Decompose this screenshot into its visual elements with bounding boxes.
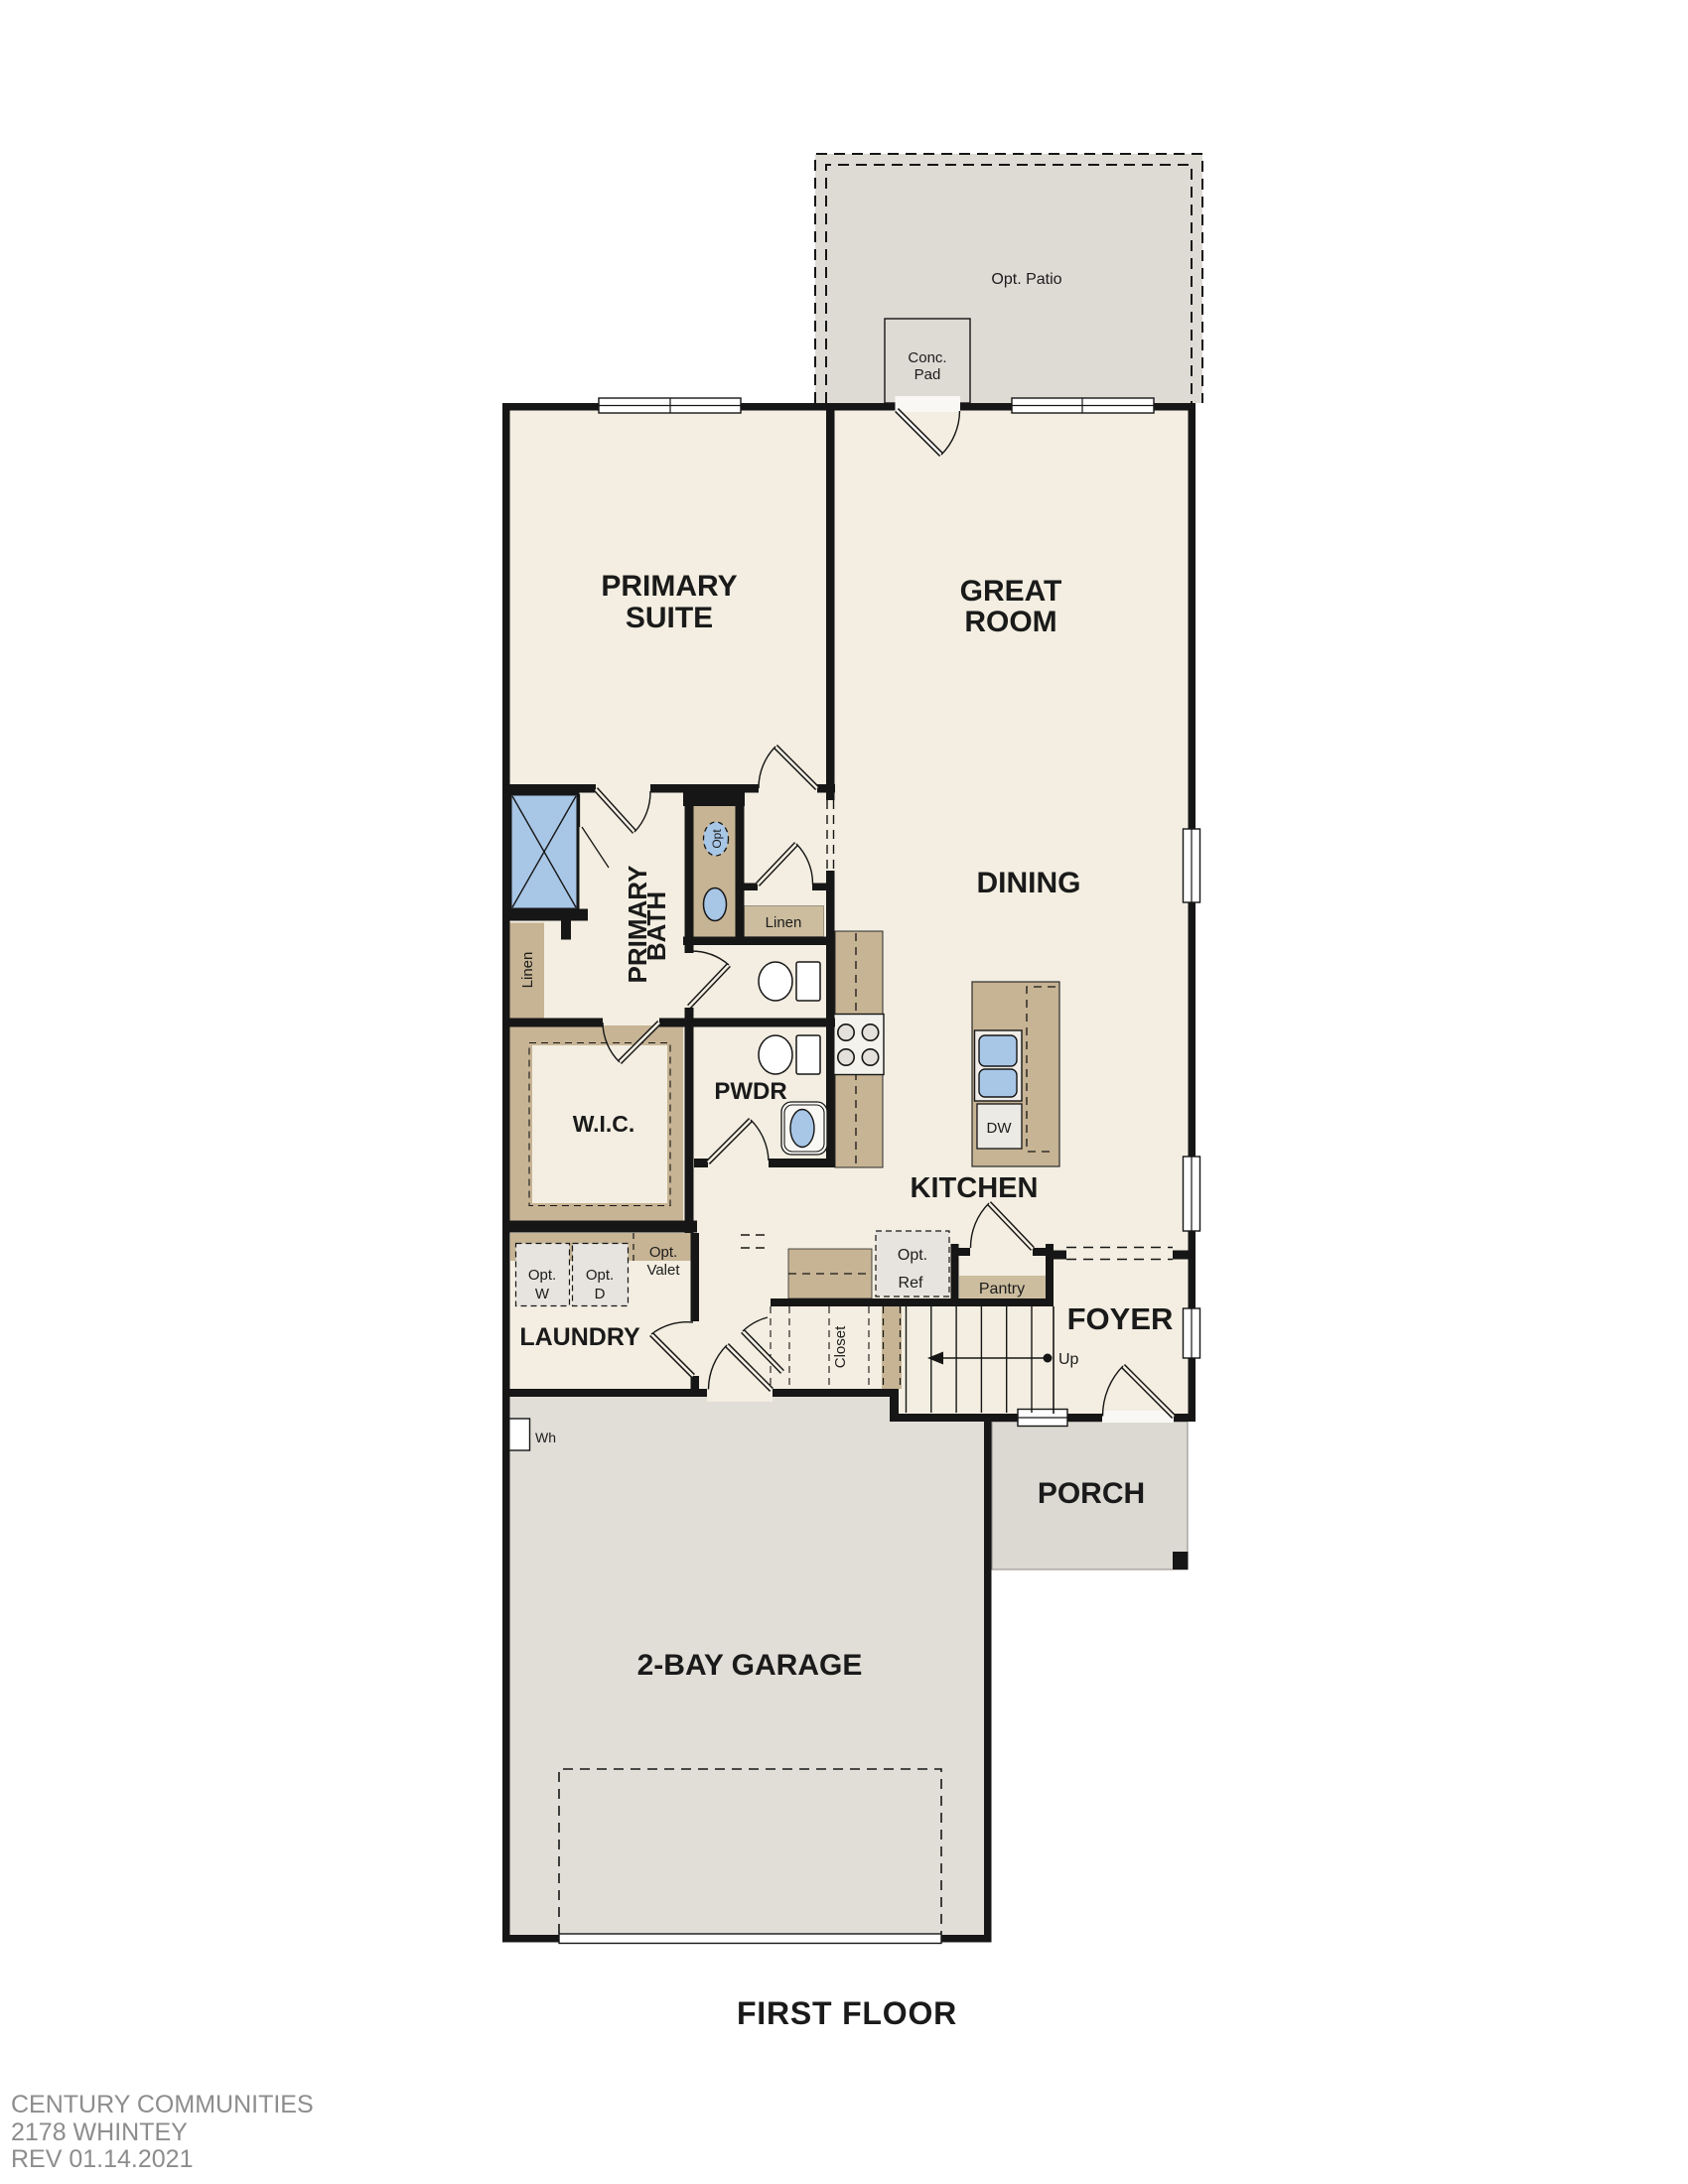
- svg-text:KITCHEN: KITCHEN: [911, 1172, 1039, 1204]
- svg-text:Opt.: Opt.: [898, 1247, 927, 1264]
- svg-text:REV 01.14.2021: REV 01.14.2021: [11, 2145, 193, 2173]
- svg-text:ROOM: ROOM: [964, 606, 1056, 638]
- svg-text:PORCH: PORCH: [1038, 1477, 1145, 1510]
- svg-text:Opt.: Opt.: [649, 1244, 677, 1261]
- svg-text:Up: Up: [1058, 1351, 1079, 1368]
- svg-text:W: W: [535, 1286, 550, 1302]
- svg-text:Wh: Wh: [535, 1430, 556, 1445]
- svg-text:PWDR: PWDR: [714, 1078, 786, 1105]
- svg-text:PRIMARY: PRIMARY: [601, 570, 737, 603]
- svg-text:Opt: Opt: [710, 829, 724, 849]
- svg-text:FIRST FLOOR: FIRST FLOOR: [737, 1995, 957, 2031]
- svg-text:SUITE: SUITE: [626, 602, 713, 634]
- svg-text:2178 WHINTEY: 2178 WHINTEY: [11, 2118, 188, 2146]
- svg-text:Linen: Linen: [766, 914, 802, 931]
- svg-text:BATH: BATH: [641, 891, 671, 961]
- svg-text:Opt.: Opt.: [528, 1267, 556, 1284]
- svg-text:DW: DW: [987, 1120, 1013, 1137]
- svg-text:Ref: Ref: [899, 1275, 923, 1292]
- svg-text:D: D: [595, 1286, 606, 1302]
- svg-text:LAUNDRY: LAUNDRY: [519, 1323, 640, 1351]
- svg-text:Conc.: Conc.: [908, 349, 946, 366]
- svg-text:Closet: Closet: [832, 1325, 849, 1368]
- svg-text:Linen: Linen: [519, 952, 536, 989]
- svg-text:Pantry: Pantry: [979, 1281, 1025, 1297]
- svg-text:Valet: Valet: [646, 1262, 680, 1279]
- svg-text:CENTURY COMMUNITIES: CENTURY COMMUNITIES: [11, 2091, 314, 2118]
- svg-text:Opt. Patio: Opt. Patio: [991, 271, 1061, 288]
- svg-text:2-BAY GARAGE: 2-BAY GARAGE: [637, 1649, 863, 1682]
- svg-text:Pad: Pad: [914, 366, 941, 383]
- svg-text:W.I.C.: W.I.C.: [573, 1111, 635, 1137]
- svg-text:FOYER: FOYER: [1067, 1301, 1174, 1336]
- svg-text:DINING: DINING: [977, 867, 1081, 899]
- svg-text:GREAT: GREAT: [960, 575, 1062, 608]
- svg-text:Opt.: Opt.: [586, 1267, 614, 1284]
